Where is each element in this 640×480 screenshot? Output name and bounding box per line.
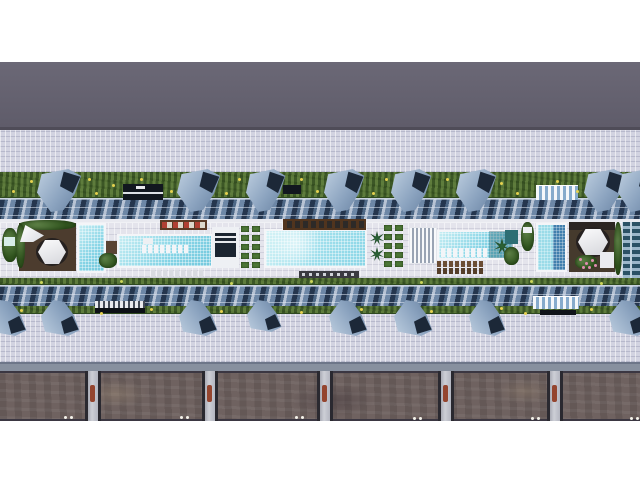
lap-pool-inwater-loungers-item bbox=[178, 245, 182, 253]
planter-grid-west-cell bbox=[241, 226, 249, 232]
wall-lights-dot bbox=[186, 416, 189, 419]
lap-pool-loungers-item bbox=[151, 270, 155, 277]
lounger-strip-center-cushions-item bbox=[330, 273, 333, 276]
shade-canopy-north-5 bbox=[391, 169, 433, 212]
family-inwater-loungers-item bbox=[471, 248, 475, 257]
sky-strip bbox=[0, 0, 640, 62]
pergola-dark-north-stripe bbox=[123, 192, 163, 194]
lawn-flowers-north-dot bbox=[225, 192, 228, 195]
lounge-sofa-right bbox=[600, 252, 614, 268]
flower-dots-pink-dot bbox=[591, 259, 594, 262]
lap-pool-loungers-item bbox=[163, 270, 167, 277]
sunbed-row-center-item bbox=[343, 221, 348, 228]
wall-lights-dot bbox=[630, 417, 633, 420]
slat-pavilion bbox=[409, 227, 437, 264]
family-inwater-loungers-item bbox=[483, 248, 487, 257]
lap-pool-loungers-item bbox=[175, 270, 179, 277]
planter-grid-west-cell bbox=[241, 262, 249, 268]
hedge-flowers-south-dot bbox=[100, 312, 103, 315]
spa-block bbox=[505, 230, 518, 244]
shade-canopy-south-5 bbox=[329, 300, 369, 336]
bench-left bbox=[4, 237, 15, 246]
sunbed-row-center-item bbox=[303, 221, 308, 228]
family-inwater-loungers-item bbox=[477, 248, 481, 257]
tower-facade bbox=[622, 222, 640, 278]
lap-pool-inwater-loungers-item bbox=[184, 245, 188, 253]
sunbed-row-white-item bbox=[167, 222, 172, 228]
wall-pillar-1-rust-mark bbox=[90, 385, 95, 402]
lap-pool-loungers-item bbox=[157, 270, 161, 277]
lounger-strip-center-cushions-item bbox=[337, 273, 340, 276]
shade-canopy-north-3 bbox=[246, 169, 287, 212]
lawn-flowers-north-dot bbox=[170, 190, 173, 193]
lap-pool bbox=[117, 234, 213, 268]
flower-dots-pink-dot bbox=[582, 266, 585, 269]
wall-lights-dot bbox=[413, 417, 416, 420]
shade-canopy-face bbox=[37, 169, 83, 212]
lap-pool-inwater-loungers-item bbox=[166, 245, 170, 253]
shade-canopy-face bbox=[469, 300, 507, 336]
lawn-flowers-north-dot bbox=[556, 180, 559, 183]
planter-grid-west-cell bbox=[252, 226, 260, 232]
hedge-flowers-mid-dot bbox=[120, 280, 123, 283]
planter-grid-west-cell bbox=[241, 253, 249, 259]
wall-lights-dot bbox=[419, 417, 422, 420]
pergola-dark-north-table bbox=[136, 186, 145, 189]
sunbed-row-center-item bbox=[295, 221, 300, 228]
lounger-strip-center bbox=[299, 271, 359, 278]
planter-grid-east-cell bbox=[395, 261, 403, 267]
lawn-flowers-north-dot bbox=[500, 182, 503, 185]
hedge-flowers-mid-dot bbox=[600, 282, 603, 285]
bottom-strip bbox=[0, 421, 640, 480]
family-inwater-loungers-item bbox=[447, 248, 451, 257]
bush-east bbox=[504, 247, 519, 265]
family-inwater-loungers-item bbox=[441, 248, 445, 257]
sunbed-row-center-item bbox=[327, 221, 332, 228]
shade-canopy-face bbox=[324, 169, 366, 212]
shade-canopy-south-8 bbox=[609, 300, 640, 336]
wall-lights-dot bbox=[180, 416, 183, 419]
planter-grid-west-cell bbox=[252, 235, 260, 241]
family-loungers-row-2-item bbox=[461, 268, 465, 274]
planter-grid-west-cell bbox=[252, 262, 260, 268]
sunbed-row-white-item bbox=[189, 222, 194, 228]
hedge-flowers-south-dot bbox=[220, 310, 223, 313]
shade-canopy-south-7 bbox=[469, 300, 507, 336]
main-pool bbox=[264, 229, 367, 268]
hedge-flowers-south-dot bbox=[150, 308, 153, 311]
wall-pillar-5 bbox=[550, 371, 560, 421]
service-road bbox=[0, 362, 640, 371]
lawn-flowers-north-dot bbox=[238, 178, 241, 181]
family-inwater-loungers-item bbox=[453, 248, 457, 257]
shade-canopy-face bbox=[618, 169, 640, 212]
shade-canopy-face bbox=[329, 300, 369, 336]
family-loungers-row-2-item bbox=[449, 268, 453, 274]
flower-dots-pink-dot bbox=[579, 258, 582, 261]
family-loungers-row-2-item bbox=[473, 268, 477, 274]
lawn-flowers-north-dot bbox=[385, 178, 388, 181]
shade-canopy-north-2 bbox=[177, 169, 222, 212]
lower-plaza bbox=[0, 314, 640, 362]
sunbed-row-center-item bbox=[311, 221, 316, 228]
flower-dots-pink-dot bbox=[594, 264, 597, 267]
sunbed-row-center-item bbox=[335, 221, 340, 228]
family-loungers-row-2-item bbox=[479, 268, 483, 274]
sunbed-row-center-item bbox=[359, 221, 364, 228]
sunbed-row-white-item bbox=[200, 222, 205, 228]
lounger-strip-center-cushions-item bbox=[316, 273, 319, 276]
wall-pillar-2 bbox=[205, 371, 215, 421]
shade-canopy-north-8 bbox=[618, 169, 640, 212]
shade-canopy-south-2 bbox=[41, 300, 81, 336]
hedge-flowers-mid-dot bbox=[40, 281, 43, 284]
sunbed-row-center-item bbox=[351, 221, 356, 228]
planter-grid-east-cell bbox=[395, 234, 403, 240]
lap-pool-inwater-loungers-item bbox=[172, 245, 176, 253]
flower-dots-pink-dot bbox=[588, 266, 591, 269]
lawn-flowers-north-dot bbox=[140, 178, 143, 181]
lap-pool-inwater-loungers-item bbox=[154, 245, 158, 253]
hedge-right bbox=[614, 222, 622, 275]
flower-dots-pink-dot bbox=[585, 262, 588, 265]
planter-grid-east-cell bbox=[384, 261, 392, 267]
shade-canopy-face bbox=[246, 169, 287, 212]
lap-pool-loungers-item bbox=[181, 270, 185, 277]
hedge-flowers-south-dot bbox=[300, 311, 303, 314]
family-inwater-loungers-item bbox=[465, 248, 469, 257]
planter-grid-east-cell bbox=[384, 234, 392, 240]
shade-canopy-north-1 bbox=[37, 169, 83, 212]
bench-right bbox=[523, 227, 532, 233]
render-stage bbox=[0, 0, 640, 480]
family-loungers-row-1-item bbox=[479, 261, 483, 267]
shade-canopy-south-3 bbox=[179, 300, 219, 336]
upper-glass-roof bbox=[0, 198, 640, 220]
upper-plaza bbox=[0, 130, 640, 172]
lawn-flowers-north-dot bbox=[30, 180, 33, 183]
lounger-strip-center-cushions-item bbox=[309, 273, 312, 276]
family-loungers-row-1-item bbox=[467, 261, 471, 267]
lap-pool-inwater-loungers-item bbox=[160, 245, 164, 253]
shade-canopy-south-4 bbox=[247, 300, 283, 332]
wall-pillar-4 bbox=[441, 371, 451, 421]
lap-pool-loungers-item bbox=[169, 270, 173, 277]
lawn-flowers-north-dot bbox=[112, 184, 115, 187]
family-loungers-row-1-item bbox=[473, 261, 477, 267]
pergola-south-bar bbox=[540, 310, 576, 315]
pool-pavilion-stripe-1 bbox=[215, 236, 236, 238]
shade-canopy-face bbox=[456, 169, 498, 212]
shade-canopy-face bbox=[394, 300, 434, 336]
lounger-strip-center-cushions-item bbox=[344, 273, 347, 276]
family-loungers-row-2-item bbox=[455, 268, 459, 274]
planter-grid-west-cell bbox=[241, 244, 249, 250]
hedge-flowers-south-dot bbox=[524, 312, 527, 315]
lap-pool-inwater-loungers-item bbox=[142, 245, 146, 253]
hedge-flowers-mid-dot bbox=[230, 282, 233, 285]
family-loungers-row-2-item bbox=[443, 268, 447, 274]
family-loungers-row-1-item bbox=[461, 261, 465, 267]
wall-lights-dot bbox=[64, 416, 67, 419]
shade-canopy-south-6 bbox=[394, 300, 434, 336]
wall-lights-dot bbox=[301, 416, 304, 419]
planter-grid-east-cell bbox=[384, 252, 392, 258]
hedge-flowers-mid-dot bbox=[310, 280, 313, 283]
family-loungers-row-1-item bbox=[449, 261, 453, 267]
lawn-flowers-north-dot bbox=[446, 178, 449, 181]
lawn-flowers-north-dot bbox=[516, 192, 519, 195]
deep-pool bbox=[536, 223, 567, 272]
lap-pool-loungers-item bbox=[199, 270, 203, 277]
hedge-flowers-mid-dot bbox=[530, 280, 533, 283]
shade-canopy-face bbox=[177, 169, 222, 212]
shade-canopy-face bbox=[179, 300, 219, 336]
planter-grid-east-cell bbox=[395, 243, 403, 249]
family-loungers-row-1-item bbox=[437, 261, 441, 267]
sunbed-row-center-item bbox=[319, 221, 324, 228]
upper-roadway bbox=[0, 62, 640, 127]
planter-grid-east-cell bbox=[395, 252, 403, 258]
shade-canopy-north-4 bbox=[324, 169, 366, 212]
wall-pillar-3 bbox=[320, 371, 330, 421]
lawn-flowers-north-dot bbox=[12, 190, 15, 193]
family-loungers-row-1-item bbox=[455, 261, 459, 267]
lawn-flowers-north-dot bbox=[88, 178, 91, 181]
lap-pool-inwater-loungers-item bbox=[148, 245, 152, 253]
lawn-flowers-north-dot bbox=[372, 192, 375, 195]
family-loungers-row-2-item bbox=[437, 268, 441, 274]
planter-grid-west-cell bbox=[252, 244, 260, 250]
wall-lights-dot bbox=[531, 417, 534, 420]
lap-pool-loungers-item bbox=[187, 270, 191, 277]
lounger-strip-center-cushions-item bbox=[351, 273, 354, 276]
bush-a bbox=[99, 253, 117, 268]
lawn-flowers-north-dot bbox=[300, 178, 303, 181]
family-loungers-row-2-item bbox=[467, 268, 471, 274]
lounger-strip-center-cushions-item bbox=[323, 273, 326, 276]
lawn-flowers-north-dot bbox=[95, 192, 98, 195]
wall-lights-dot bbox=[295, 416, 298, 419]
cabana-left bbox=[38, 240, 66, 264]
shade-canopy-face bbox=[41, 300, 81, 336]
lap-pool-loungers-item bbox=[193, 270, 197, 277]
planter-grid-west-cell bbox=[241, 235, 249, 241]
shade-canopy-north-6 bbox=[456, 169, 498, 212]
hedge-flowers-south-dot bbox=[590, 308, 593, 311]
lawn-flowers-north-dot bbox=[316, 190, 319, 193]
pool-pavilion-stripe-2 bbox=[215, 241, 236, 243]
lawn-flowers-north-dot bbox=[576, 190, 579, 193]
pergola-striped-north bbox=[536, 185, 578, 200]
wall-pillar-3-rust-mark bbox=[322, 385, 327, 402]
planter-grid-east-cell bbox=[395, 225, 403, 231]
shade-canopy-south-1 bbox=[0, 300, 28, 336]
sunbed-row-white-item bbox=[178, 222, 183, 228]
pergola-striped-south bbox=[533, 296, 579, 309]
wall-pillar-1 bbox=[88, 371, 98, 421]
wall-lights-dot bbox=[636, 417, 639, 420]
wall-lights-dot bbox=[537, 417, 540, 420]
lounger-strip-center-cushions-item bbox=[302, 273, 305, 276]
sunbed-row-center-item bbox=[287, 221, 292, 228]
wall-pillar-2-rust-mark bbox=[207, 385, 212, 402]
family-loungers-row-1-item bbox=[443, 261, 447, 267]
wall-pillar-5-rust-mark bbox=[552, 385, 557, 402]
swimup-island bbox=[143, 238, 153, 244]
shade-canopy-face bbox=[391, 169, 433, 212]
wall-pillar-4-rust-mark bbox=[443, 385, 448, 402]
family-inwater-loungers-item bbox=[459, 248, 463, 257]
planter-grid-west-cell bbox=[252, 253, 260, 259]
shade-canopy-face bbox=[247, 300, 283, 332]
hedge-flowers-mid-dot bbox=[420, 281, 423, 284]
planter-grid-east-cell bbox=[384, 243, 392, 249]
planter-grid-east-cell bbox=[384, 225, 392, 231]
wall-lights-dot bbox=[70, 416, 73, 419]
